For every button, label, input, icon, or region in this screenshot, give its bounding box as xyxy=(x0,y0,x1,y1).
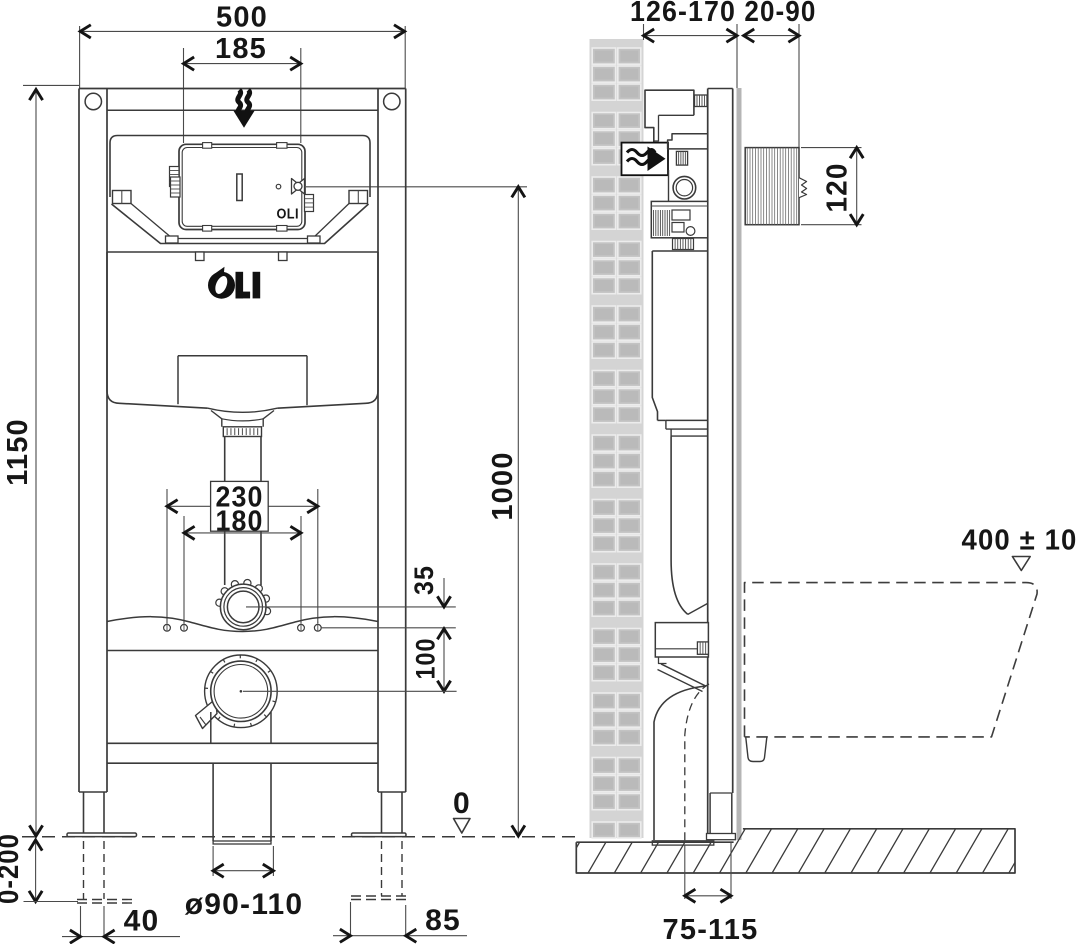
svg-text:400 ± 10: 400 ± 10 xyxy=(962,525,1078,557)
svg-text:185: 185 xyxy=(215,33,267,65)
svg-text:100: 100 xyxy=(411,638,441,680)
svg-text:ø90-110: ø90-110 xyxy=(185,888,303,921)
svg-text:1150: 1150 xyxy=(2,418,34,486)
svg-text:120: 120 xyxy=(822,163,854,213)
svg-text:500: 500 xyxy=(216,2,268,34)
svg-text:180: 180 xyxy=(216,505,264,537)
svg-text:40: 40 xyxy=(124,905,160,938)
svg-text:1000: 1000 xyxy=(487,451,519,520)
svg-text:126-170: 126-170 xyxy=(630,0,736,28)
svg-text:20-90: 20-90 xyxy=(744,0,816,28)
svg-text:35: 35 xyxy=(409,565,439,595)
svg-text:0: 0 xyxy=(453,787,471,820)
svg-text:0-200: 0-200 xyxy=(0,833,25,904)
svg-text:OLI: OLI xyxy=(276,206,299,222)
svg-text:75-115: 75-115 xyxy=(663,914,759,944)
svg-text:85: 85 xyxy=(425,904,461,937)
